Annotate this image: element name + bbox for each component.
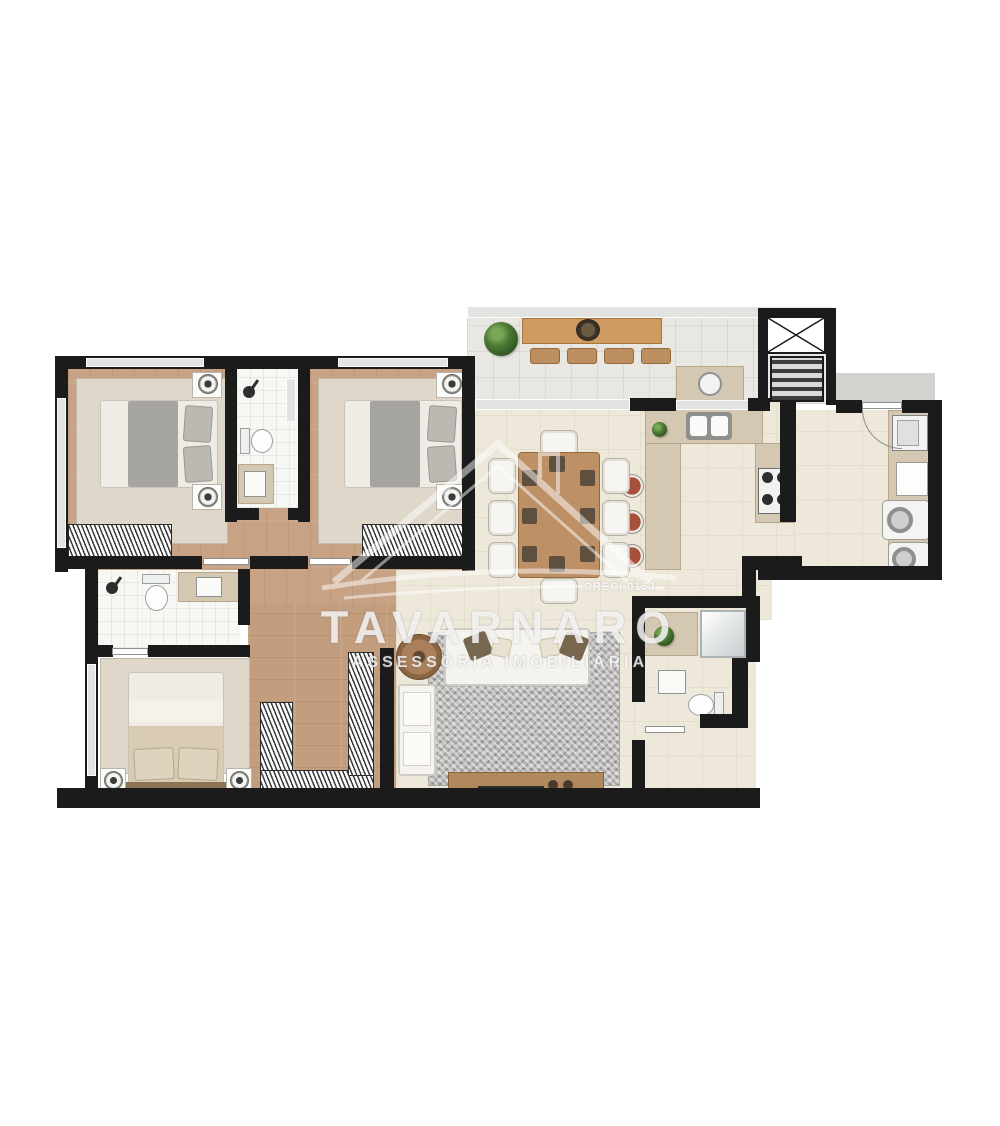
wall [288, 508, 310, 520]
wall [632, 606, 645, 702]
lavabo-shower-glass [700, 610, 746, 658]
wall [928, 400, 942, 580]
window [338, 358, 448, 367]
bedroom2-wardrobe [362, 524, 470, 557]
wall [298, 356, 310, 522]
round-side-table [396, 634, 442, 680]
terrace-sink-icon [698, 372, 722, 396]
place-setting [522, 508, 537, 524]
bedroom2-duvet [370, 401, 420, 487]
dining-chair [602, 542, 630, 578]
place-setting [522, 470, 537, 486]
bathroom-top-toilet-bowl [251, 429, 273, 453]
wall [380, 648, 394, 790]
bathroom-top-toilet-tank [240, 428, 250, 454]
place-setting [580, 470, 595, 486]
bedroom2-pillow [427, 405, 457, 443]
washer-icon [882, 500, 930, 540]
bbq-stool [641, 348, 671, 364]
door-leaf [309, 558, 351, 565]
terrace-plant-icon [484, 322, 518, 356]
place-setting [549, 456, 565, 472]
wall [632, 740, 645, 790]
dining-chair [488, 542, 516, 578]
lavabo-sink [658, 670, 686, 694]
bedroom2-lamp-icon [442, 374, 462, 394]
window [57, 398, 66, 548]
stove-burner [762, 472, 773, 483]
place-setting [522, 546, 537, 562]
wall [462, 356, 475, 571]
place-setting [580, 546, 595, 562]
bedroom1-duvet [128, 401, 178, 487]
common-hall-floor [833, 373, 935, 402]
door-leaf [203, 558, 249, 565]
wall [57, 788, 760, 808]
bedroom1-wardrobe [68, 524, 172, 557]
place-setting [549, 556, 565, 572]
bedroom2-pillow [427, 445, 457, 483]
bbq-stool [604, 348, 634, 364]
sofa-side-seat [403, 732, 431, 766]
window [87, 664, 96, 776]
sofa-cushion-icon [490, 636, 513, 659]
bedroom1-pillow [183, 405, 213, 443]
kitchen-sink-basin [689, 415, 708, 437]
master-sheet [129, 700, 223, 722]
bathroom-top-sink [244, 471, 266, 497]
wall [148, 645, 250, 657]
lavabo-plant-icon [654, 626, 674, 646]
dining-chair [488, 458, 516, 494]
master-sink [196, 577, 222, 597]
bbq-stool [567, 348, 597, 364]
stairs-icon [770, 356, 824, 402]
grill-icon [576, 319, 600, 341]
service-cabinet [896, 462, 928, 496]
wall [55, 556, 202, 569]
wall [237, 508, 259, 520]
wall [700, 714, 748, 728]
bbq-stool [530, 348, 560, 364]
wall [352, 556, 475, 569]
door-leaf [645, 726, 685, 733]
master-pillow [177, 747, 219, 781]
wall [225, 356, 237, 522]
dining-chair [602, 458, 630, 494]
master-toilet-bowl [145, 585, 168, 611]
wall [238, 569, 250, 625]
place-setting [580, 508, 595, 524]
wall [780, 402, 796, 522]
bedroom1-lamp-icon [198, 374, 218, 394]
entry-door-leaf [862, 402, 902, 409]
bedroom1-pillow [183, 445, 213, 483]
floorplan-canvas: CRECI 015J TAVARNARO ASSESSORIA IMOBILIÁ… [0, 0, 1000, 1126]
washer-door [887, 507, 913, 533]
wall [250, 556, 308, 569]
elevator-icon [766, 316, 826, 354]
bedroom2-lamp-icon [442, 487, 462, 507]
window [86, 358, 204, 367]
dining-chair [540, 578, 578, 604]
kitchen-sink-basin [710, 415, 729, 437]
master-pillow [133, 747, 175, 781]
wall [758, 308, 836, 318]
master-toilet-tank [142, 574, 170, 584]
sofa-side-seat [403, 692, 431, 726]
wall [826, 308, 836, 405]
lavabo-toilet-bowl [688, 694, 714, 716]
wall [632, 596, 760, 608]
wall [836, 400, 862, 413]
bathroom-top-niche [286, 378, 296, 422]
kitchen-pass-through-window [676, 400, 750, 410]
wall [630, 398, 676, 411]
stove-burner [762, 494, 773, 505]
dining-chair [602, 500, 630, 536]
wall [758, 308, 768, 405]
wall [746, 596, 760, 662]
wall [85, 645, 113, 657]
closet-wardrobe-right [348, 652, 374, 776]
bedroom1-lamp-icon [198, 487, 218, 507]
sofa-cushion-icon [538, 636, 561, 659]
terrace-sliding-door [475, 399, 630, 410]
dining-chair [488, 500, 516, 536]
door-leaf [112, 648, 148, 655]
kitchen-plant-icon [652, 422, 667, 437]
